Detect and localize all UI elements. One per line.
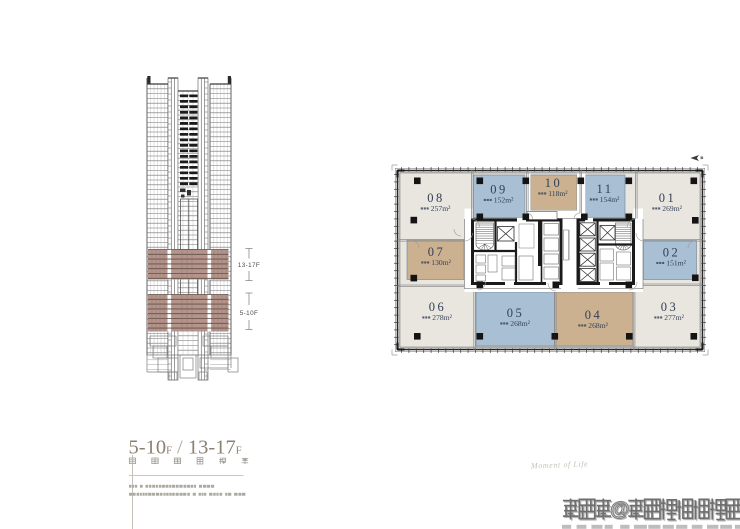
svg-text:268m²: 268m² [510,319,530,328]
svg-text:11: 11 [596,182,613,196]
svg-text:152m²: 152m² [494,196,514,205]
svg-text:5-10F: 5-10F [240,310,258,317]
svg-text:08: 08 [427,191,445,205]
svg-text:13-17F: 13-17F [238,262,260,269]
svg-text:01: 01 [659,191,677,205]
svg-text:5-10F / 13-17F: 5-10F / 13-17F [129,437,242,459]
svg-text:118m²: 118m² [548,189,568,198]
svg-text:278m²: 278m² [432,313,452,322]
svg-text:268m²: 268m² [588,321,608,330]
svg-text:@: @ [610,499,630,521]
svg-text:151m²: 151m² [666,259,686,268]
svg-text:05: 05 [507,306,525,320]
svg-text:277m²: 277m² [664,313,684,322]
svg-text:130m²: 130m² [431,258,451,267]
svg-text:269m²: 269m² [662,204,682,213]
svg-text:10: 10 [545,176,563,190]
svg-text:09: 09 [490,183,508,197]
svg-text:06: 06 [429,300,447,314]
svg-text:07: 07 [428,245,446,259]
svg-text:02: 02 [663,246,681,260]
svg-text:257m²: 257m² [431,204,451,213]
svg-text:03: 03 [661,300,679,314]
svg-text:04: 04 [585,308,603,322]
svg-text:154m²: 154m² [600,195,620,204]
